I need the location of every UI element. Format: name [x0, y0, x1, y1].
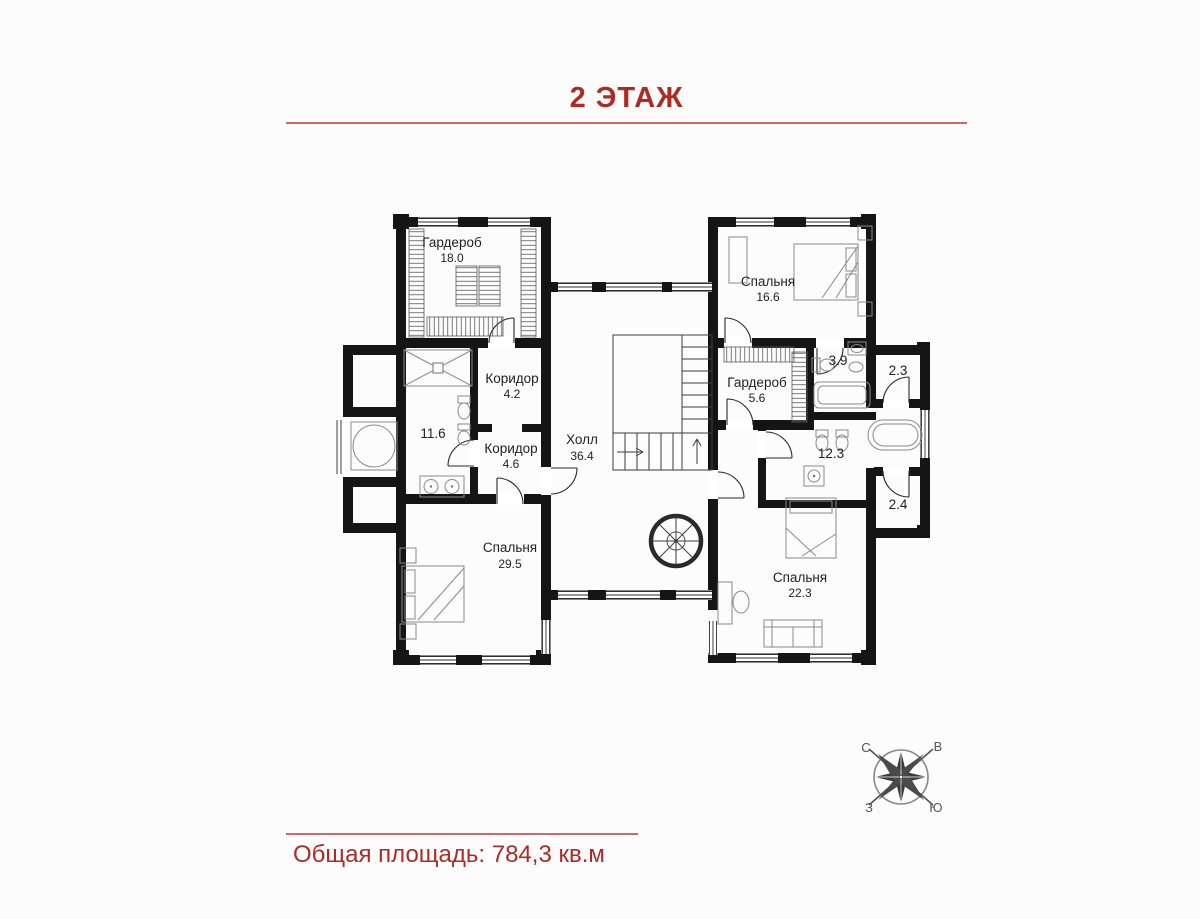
window: [488, 218, 530, 227]
room-label-closet-right-lower: 2.4: [889, 497, 908, 512]
window: [482, 656, 530, 665]
svg-text:16.6: 16.6: [756, 290, 780, 304]
floor-plan-drawing: Гардероб 18.0 Спальня 16.6 Коридор 4.2 1…: [0, 0, 1200, 919]
svg-text:Спальня: Спальня: [741, 274, 795, 289]
windows-layer: [337, 218, 930, 665]
window: [672, 283, 712, 292]
bathroom-3-9-fixtures: [812, 342, 870, 408]
bathroom-11-6-fixtures: [351, 350, 472, 497]
window: [606, 283, 662, 292]
room-label-bathroom-left: 11.6: [420, 426, 445, 441]
svg-text:22.3: 22.3: [788, 586, 812, 600]
bed-bottom-left: [400, 548, 464, 639]
main-staircase: [613, 335, 712, 470]
room-label-corridor-upper: Коридор 4.2: [485, 371, 538, 401]
window: [810, 654, 852, 663]
door: [883, 467, 909, 497]
door: [708, 470, 744, 499]
svg-text:Коридор: Коридор: [485, 371, 538, 386]
door: [758, 431, 792, 458]
svg-text:Коридор: Коридор: [484, 441, 537, 456]
window: [709, 621, 718, 655]
svg-text:3.9: 3.9: [829, 353, 848, 368]
compass-east-label: В: [934, 739, 943, 754]
svg-text:2.4: 2.4: [889, 497, 908, 512]
window: [558, 283, 592, 292]
window: [558, 591, 588, 600]
room-label-bedroom-bottom-right: Спальня 22.3: [773, 570, 827, 600]
svg-text:18.0: 18.0: [440, 251, 464, 265]
spiral-staircase: [651, 516, 701, 566]
door: [883, 377, 909, 408]
window: [806, 218, 850, 227]
footer-rule: [286, 833, 638, 835]
window: [418, 218, 458, 227]
svg-text:5.6: 5.6: [749, 391, 766, 405]
window: [736, 654, 778, 663]
room-label-hall: Холл 36.4: [566, 432, 598, 463]
room-label-bathroom-small-right: 3.9: [829, 353, 848, 368]
room-label-corridor-lower: Коридор 4.6: [484, 441, 537, 471]
total-area-label: Общая площадь: 784,3 кв.м: [293, 841, 605, 869]
window: [676, 591, 712, 600]
svg-text:12.3: 12.3: [818, 446, 844, 461]
svg-text:36.4: 36.4: [570, 449, 594, 463]
room-label-closet-right-upper: 2.3: [889, 363, 908, 378]
window: [420, 656, 456, 665]
door: [448, 440, 479, 467]
svg-text:Холл: Холл: [566, 432, 598, 447]
svg-text:Спальня: Спальня: [773, 570, 827, 585]
room-label-wardrobe-top-left: Гардероб 18.0: [422, 235, 482, 265]
svg-text:Гардероб: Гардероб: [727, 375, 787, 390]
svg-text:11.6: 11.6: [420, 426, 445, 441]
window: [606, 591, 660, 600]
compass-south-label: Ю: [929, 800, 942, 815]
compass-rose: С В З Ю: [861, 739, 942, 815]
door: [496, 478, 524, 505]
room-label-bedroom-bottom-left: Спальня 29.5: [483, 540, 537, 571]
svg-text:Гардероб: Гардероб: [422, 235, 482, 250]
door: [541, 467, 577, 495]
room-label-bathroom-right: 12.3: [818, 446, 844, 461]
svg-text:Спальня: Спальня: [483, 540, 537, 555]
bed-top-right: [729, 226, 872, 316]
compass-north-label: С: [861, 740, 870, 755]
compass-west-label: З: [865, 800, 873, 815]
window: [736, 218, 774, 227]
door: [724, 318, 752, 349]
svg-text:4.6: 4.6: [503, 457, 520, 471]
room-label-bedroom-top-right: Спальня 16.6: [741, 274, 795, 304]
svg-text:2.3: 2.3: [889, 363, 908, 378]
floor-plan-page: 2 ЭТАЖ: [0, 0, 1200, 919]
window: [542, 620, 551, 654]
svg-text:29.5: 29.5: [498, 557, 522, 571]
svg-text:4.2: 4.2: [504, 387, 521, 401]
